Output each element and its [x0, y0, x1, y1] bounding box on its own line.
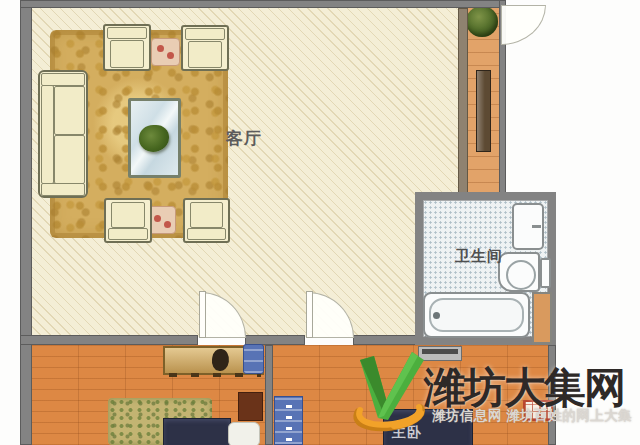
door-leaf — [199, 291, 206, 338]
bathroom-door — [532, 292, 552, 344]
wall-bedroom-divider — [265, 345, 273, 445]
armchair-top-left — [103, 24, 151, 71]
drain-icon — [433, 312, 440, 319]
shoe-cabinet — [476, 70, 491, 152]
armchair-seat — [190, 202, 223, 228]
armchair-seat — [188, 41, 222, 68]
nightstand-brown — [238, 392, 263, 421]
door-leaf — [306, 291, 313, 338]
drawer-chest-blue — [274, 396, 303, 445]
wall-right-lower — [548, 345, 556, 445]
bathroom-label: 卫生间 — [455, 247, 503, 266]
drawer-knobs — [286, 401, 292, 441]
flower-icon — [167, 52, 174, 59]
armchair-seat — [110, 40, 144, 68]
wall-living-right — [458, 8, 468, 196]
master-bedroom-label: 主卧 — [392, 424, 422, 442]
entry-plant-icon — [466, 6, 498, 37]
flower-icon — [154, 215, 161, 222]
door-swing-entry — [501, 5, 546, 45]
sofa-cushion — [54, 135, 85, 184]
sofa-cushion — [54, 86, 85, 135]
toilet-tank — [540, 258, 551, 288]
armchair-top-right — [181, 25, 229, 71]
floor-plan-image: 客厅 卫生间 主卧 — [0, 0, 640, 445]
dresser-gray — [418, 346, 462, 361]
wall-middle-a — [20, 335, 198, 345]
side-table-top — [151, 38, 180, 66]
sofa-armrest-bottom — [41, 183, 85, 196]
toilet-seat — [506, 260, 536, 290]
bathtub — [423, 292, 530, 338]
sofa — [38, 70, 88, 198]
armchair-back — [185, 28, 225, 40]
bathroom-sink — [512, 203, 544, 250]
chair-blue — [243, 344, 264, 374]
armchair-back — [108, 228, 148, 240]
bathtub-basin — [429, 298, 524, 332]
living-room-label: 客厅 — [226, 127, 262, 150]
toilet-bowl — [498, 252, 540, 292]
red-grid-unit — [523, 400, 553, 421]
wall-left-outer — [20, 0, 32, 445]
armchair-seat — [111, 202, 145, 228]
sofa-backrest — [41, 85, 54, 184]
armchair-back — [107, 27, 147, 39]
bed-left — [163, 418, 231, 445]
faucet-icon — [532, 225, 541, 228]
flower-icon — [164, 221, 171, 228]
armchair-back — [187, 228, 226, 240]
flower-icon — [157, 45, 164, 52]
armchair-bottom-left — [104, 198, 152, 243]
armchair-bottom-right — [183, 198, 230, 243]
dresser-top — [422, 349, 458, 354]
wall-top — [20, 0, 506, 8]
pillow — [228, 422, 260, 445]
